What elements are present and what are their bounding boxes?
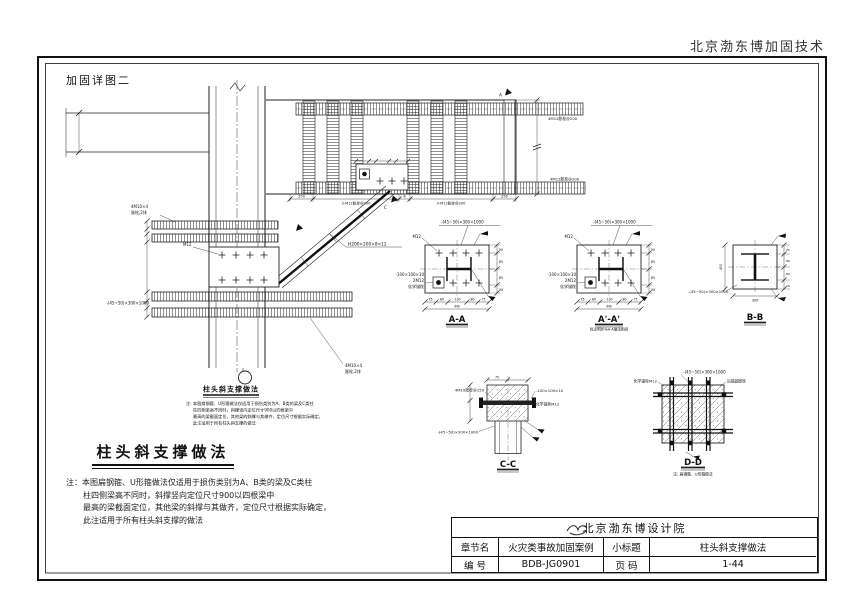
- page-label: 页 码: [603, 556, 649, 574]
- note-line: 柱四侧梁高不同时，斜撑竖向定位尺寸900以四根梁中: [66, 490, 346, 503]
- aa2-dim-b3: 130: [606, 298, 612, 302]
- detail-note-1: 注: 本图扁钢箍、U形箍做法仅适用于损伤类别为A、B类的梁及C类柱: [186, 400, 314, 407]
- head-m12-label: M12: [183, 242, 192, 247]
- detail-title-rules: [203, 395, 259, 398]
- bb-dim-r1: 25: [786, 248, 790, 252]
- dd-note: 注: 扁钢箍、U形箍做法: [673, 472, 713, 477]
- aa-dim-total: 440: [454, 305, 460, 309]
- aa2-bolts-label: 2M12: [565, 278, 577, 283]
- title-rule-thick: [92, 464, 234, 466]
- aa2-dim-b5: 75: [633, 298, 637, 302]
- number-value: BDB-JG0901: [498, 556, 603, 574]
- cc-chem-label: 化学锚栓M12: [536, 402, 560, 407]
- note-line: 注：本图扁钢箍、U形箍做法仅适用于损伤类别为A、B类的梁及C类柱: [66, 477, 346, 490]
- aa2-dim-r1: 50: [651, 248, 655, 252]
- plan-anchor-label-2: 3-M12胀栓@200: [437, 201, 467, 206]
- title-block: 北京渤东博设计院 章节名 火灾类事故加固案例 小标题 柱头斜支撑做法 编 号 B…: [451, 517, 818, 573]
- aa2-flatsteel-label: -(45~50)×300×1000: [593, 220, 636, 225]
- dim-8: 8: [403, 195, 406, 199]
- aa-bolts-label: 2M12: [413, 278, 425, 283]
- aa-flatsteel-label: -(45~50)×300×1000: [441, 220, 484, 225]
- aa-dim-r4: 50: [499, 288, 503, 292]
- section-dd: [653, 375, 733, 471]
- section-label-aa2: A'-A': [598, 315, 620, 325]
- section-aa: [420, 226, 500, 328]
- detail-title: 柱头斜支撑做法: [203, 385, 259, 394]
- section-label-cc: C-C: [500, 460, 516, 470]
- aa2-chem-label: 化学锚栓: [560, 283, 576, 289]
- vendor-header: 北京渤东博加固技术: [690, 36, 825, 55]
- dd-chem-label: 化学锚栓M12: [634, 379, 658, 384]
- head-anchor2-label-line1: 4M10×4: [345, 363, 362, 368]
- section-aa-prime: [572, 226, 652, 328]
- dd-flatsteel-label: -(45~50)×300×1000: [683, 370, 726, 375]
- title-block-grid: 章节名 火灾类事故加固案例 小标题 柱头斜支撑做法 编 号 BDB-JG0901…: [452, 538, 817, 573]
- page-value: 1-44: [649, 556, 816, 574]
- bb-flatsteel-label: -(45~50)×300×1000: [688, 289, 729, 294]
- drawing-sheet: 250 8 250 3-M12胀栓@200 3-M12胀栓@200 A C 4M…: [0, 0, 863, 609]
- strip-anchor-label-2: 4M12胀栓@200: [550, 177, 580, 182]
- note-line: 最高的梁截面定位，其他梁的斜撑与其做齐，定位尺寸根据实际确定，: [66, 502, 346, 515]
- plan-anchor-label-1: 3-M12胀栓@200: [342, 201, 372, 206]
- aa2-dim-r2: 65: [651, 260, 655, 264]
- detail-note-2: 柱四侧梁高不同时，斜撑竖向定位尺寸900以四根梁中: [193, 407, 293, 414]
- diagonal-brace: [274, 186, 402, 288]
- cc-anchor150-label: 4M10胀栓@150: [455, 388, 485, 393]
- cut-letter-c: C: [384, 205, 387, 210]
- strip-anchor-label-1: 4M12胀栓@200: [548, 116, 578, 121]
- head-anchor-label-line2: 胀栓,2排: [131, 209, 147, 215]
- detail-note-3: 最高的梁截面定位，其他梁的斜撑与其做齐，定位尺寸根据实际确定，: [193, 413, 323, 420]
- brace-spec-label: H200×200×8×12: [348, 242, 387, 248]
- bb-dim-r4: 25: [786, 284, 790, 288]
- subtitle-value: 柱头斜支撑做法: [649, 538, 816, 556]
- head-anchor2-label-line2: 胀栓,2排: [345, 368, 361, 374]
- aa-dim-b3: 130: [454, 298, 460, 302]
- cut-letter-a: A: [499, 93, 503, 99]
- section-bb: [723, 234, 791, 326]
- aa-dim-b1: 75: [428, 298, 432, 302]
- aa2-dim-r4: 50: [651, 288, 655, 292]
- head-anchor-label-line1: 4M10×4: [131, 204, 148, 209]
- bb-dim-left: 400: [719, 264, 723, 270]
- aa-dim-r3: 65: [499, 276, 503, 280]
- aa-dim-r2: 65: [499, 260, 503, 264]
- chapter-label: 章节名: [452, 538, 498, 556]
- section-label-aa: A-A: [449, 315, 466, 325]
- aa-dim-r1: 50: [499, 248, 503, 252]
- aa-dim-b4: 80: [470, 298, 474, 302]
- bb-dim-r3: 80: [786, 272, 790, 276]
- section-label-dd: D-D: [684, 458, 702, 468]
- company-name: 北京渤东博设计院: [583, 520, 687, 536]
- detail-note-4: 此注适用于所有柱头斜支撑的做法: [193, 420, 256, 427]
- aa2-dim-total: 440: [606, 305, 612, 309]
- aa2-m12-label: M12: [564, 234, 573, 239]
- section-flag-icon: [296, 224, 303, 231]
- aa-plate-label: -100×100×10: [395, 272, 424, 277]
- title-block-header: 北京渤东博设计院: [452, 518, 817, 538]
- general-notes: 注：本图扁钢箍、U形箍做法仅适用于损伤类别为A、B类的梁及C类柱 柱四侧梁高不同…: [66, 477, 346, 527]
- number-label: 编 号: [452, 556, 498, 574]
- subtitle-label: 小标题: [603, 538, 649, 556]
- cc-dim-top: 75: [495, 376, 499, 380]
- aa2-note: 除注明外与A-A做法相同: [590, 327, 629, 332]
- plan-view: [266, 98, 585, 203]
- aa2-dim-b1: 75: [580, 298, 584, 302]
- aa-m12-label: M12: [412, 234, 421, 239]
- section-flag-icon: [505, 89, 512, 96]
- cc-plate-label: -100×100×10: [536, 388, 564, 393]
- bb-dim-r2: 80: [786, 259, 790, 263]
- aa2-plate-label: -100×100×10: [547, 272, 576, 277]
- bb-dim-bottom: 300: [752, 299, 758, 303]
- chapter-value: 火灾类事故加固案例: [498, 538, 603, 556]
- aa-dim-b2: 80: [440, 298, 444, 302]
- section-label-bb: B-B: [747, 313, 764, 323]
- dim-250-left: 250: [298, 195, 306, 199]
- aa2-dim-b2: 80: [592, 298, 596, 302]
- title-rule-thin: [92, 468, 234, 469]
- main-title: 柱头斜支撑做法: [88, 441, 238, 462]
- dd-rear-anchor-label: 后锚固胀栓: [727, 379, 746, 384]
- head-flatsteel-label: -(45~50)×300×1000: [106, 301, 149, 306]
- aa2-dim-r3: 65: [651, 276, 655, 280]
- figure-label: 加固详图二: [66, 72, 131, 88]
- note-line: 此注适用于所有柱头斜支撑的做法: [66, 515, 346, 528]
- cc-flatsteel-label: -(45~50)×300×1000: [438, 430, 479, 435]
- aa-chem-label: 化学锚栓: [408, 283, 424, 289]
- aa2-dim-b4: 80: [622, 298, 626, 302]
- aa-dim-b5: 75: [481, 298, 485, 302]
- dim-250-right: 250: [501, 195, 509, 199]
